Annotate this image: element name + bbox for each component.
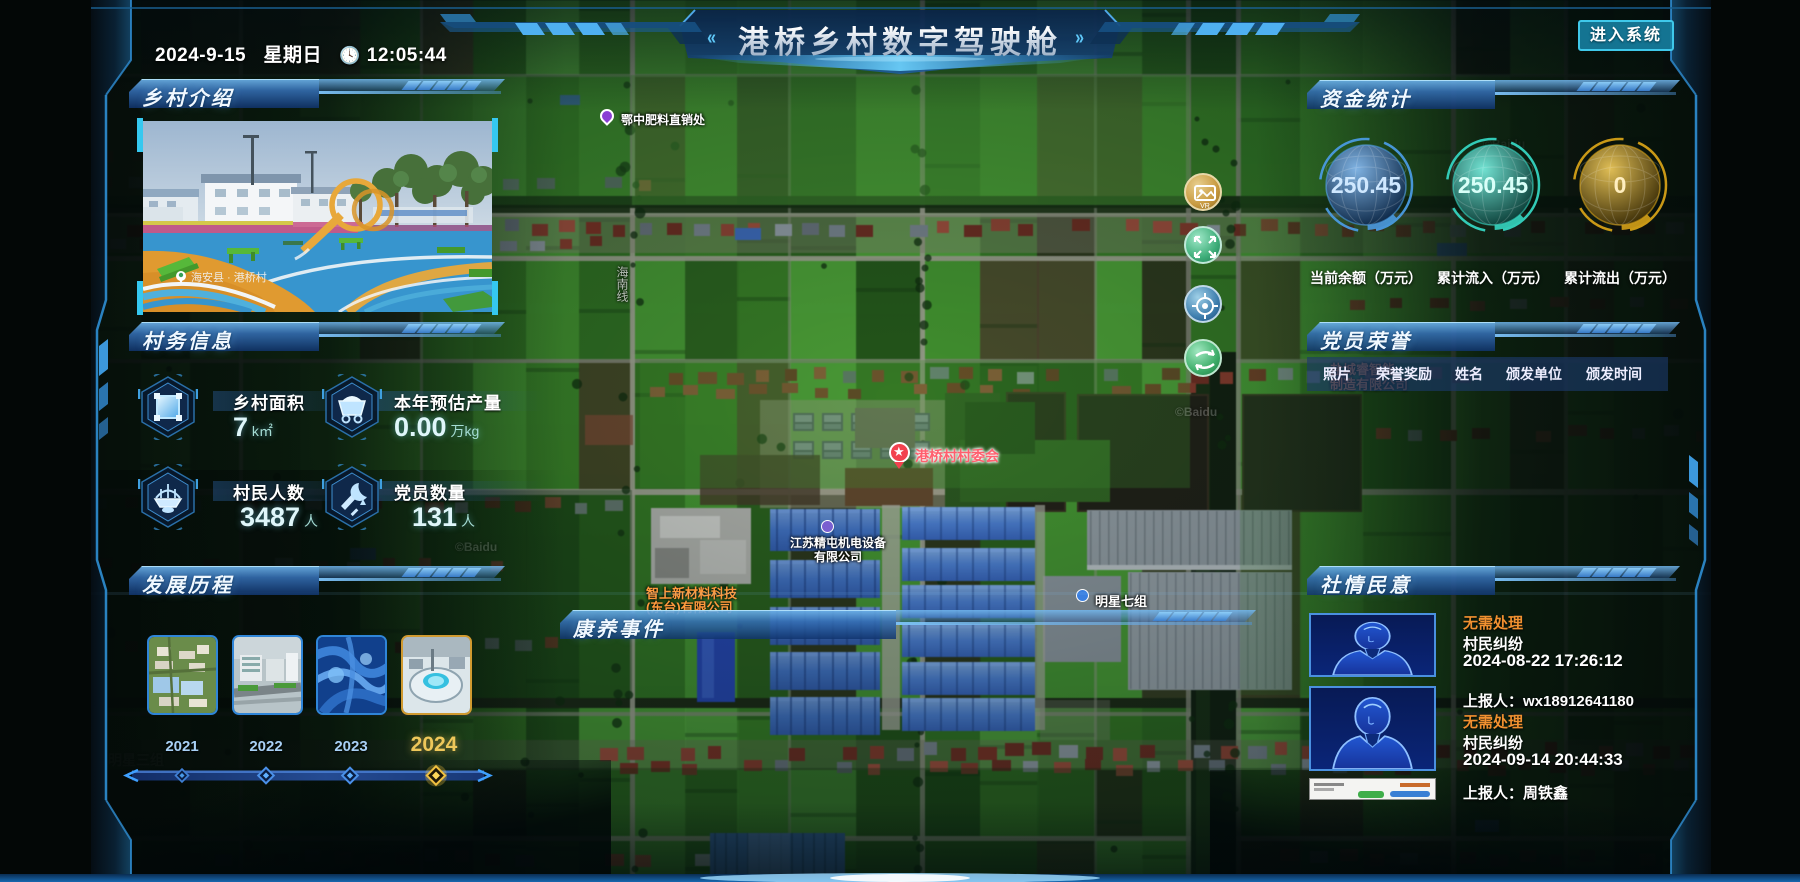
svg-text:VR: VR [1200, 203, 1210, 210]
svg-text:250.45: 250.45 [1331, 172, 1402, 198]
svg-text:0: 0 [1614, 172, 1627, 198]
svg-text:海安县 · 港桥村: 海安县 · 港桥村 [191, 270, 267, 284]
svg-text:250.45: 250.45 [1458, 172, 1529, 198]
